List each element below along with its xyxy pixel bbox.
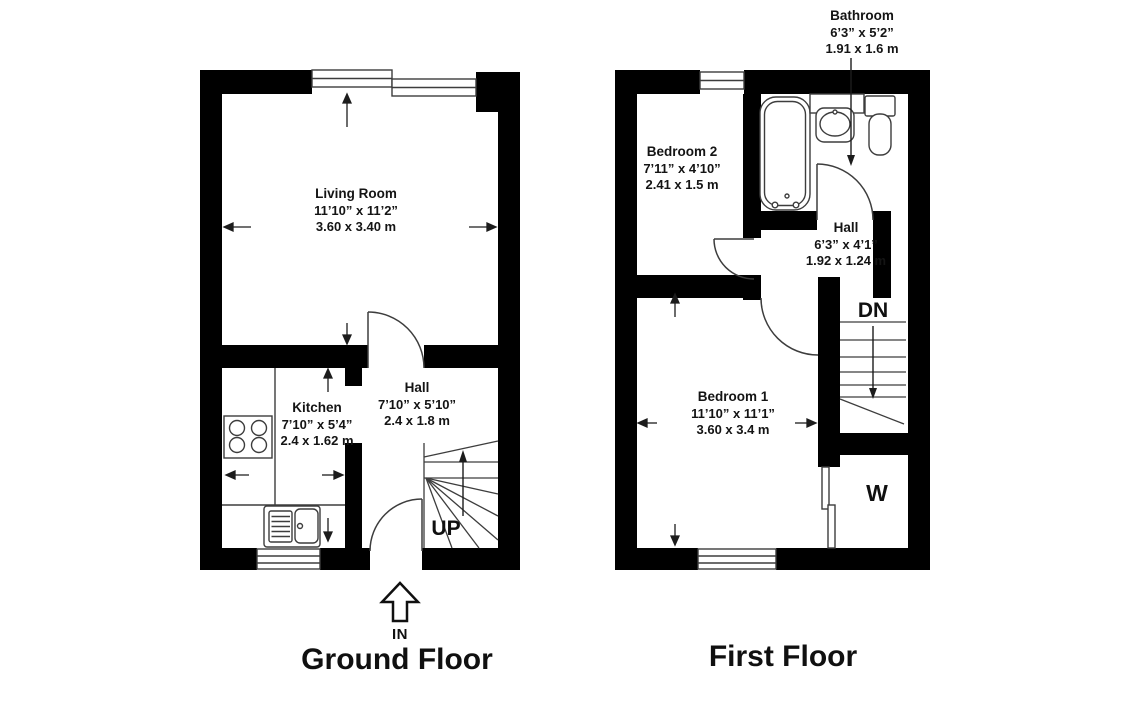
stairs-down-label: DN <box>858 299 888 323</box>
room-name: Living Room <box>314 186 398 203</box>
front-door-arc <box>370 499 422 551</box>
living-room-window-left <box>312 70 392 87</box>
kitchen-sink-icon <box>264 506 320 547</box>
room-dim-metric: 1.91 x 1.6 m <box>826 41 899 58</box>
bedroom2-door-arc <box>714 239 754 279</box>
ground-floor-title: Ground Floor <box>301 643 493 677</box>
room-dim-imperial: 6’3” x 5’2” <box>826 25 899 42</box>
bedroom2-window <box>700 72 744 89</box>
room-dim-imperial: 11’10” x 11’1” <box>691 406 775 423</box>
first-floor-title: First Floor <box>709 640 857 674</box>
ground-floor-windows <box>257 70 476 569</box>
bedroom2-label: Bedroom 2 7’11” x 4’10” 2.41 x 1.5 m <box>643 144 720 194</box>
bedroom1-door-arc <box>761 298 818 355</box>
hob-icon <box>224 416 272 458</box>
first-hall-label: Hall 6’3” x 4’1” 1.92 x 1.24 m <box>806 220 886 270</box>
room-dim-metric: 1.92 x 1.24 m <box>806 253 886 270</box>
ground-floor-plan <box>200 70 520 621</box>
room-name: Bathroom <box>826 8 899 25</box>
room-name: Bedroom 1 <box>691 389 775 406</box>
room-dim-imperial: 7’10” x 5’10” <box>378 397 456 414</box>
bathroom-door-arc <box>817 164 873 220</box>
room-dim-imperial: 7’11” x 4’10” <box>643 161 720 178</box>
ground-hall-label: Hall 7’10” x 5’10” 2.4 x 1.8 m <box>378 380 456 430</box>
entrance-label: IN <box>392 626 408 643</box>
bedroom1-window <box>698 549 776 569</box>
ground-floor-doors <box>368 312 424 551</box>
bedroom1-label: Bedroom 1 11’10” x 11’1” 3.60 x 3.4 m <box>691 389 775 439</box>
kitchen-window <box>257 549 320 569</box>
room-name: Hall <box>806 220 886 237</box>
room-name: Hall <box>378 380 456 397</box>
bathroom-label: Bathroom 6’3” x 5’2” 1.91 x 1.6 m <box>826 8 899 58</box>
living-room-window-right <box>392 79 476 96</box>
entrance-arrow-icon <box>382 583 418 621</box>
room-dim-metric: 3.60 x 3.4 m <box>691 422 775 439</box>
wardrobe-sliding-doors <box>822 467 835 548</box>
stairs-up-label: UP <box>431 517 460 541</box>
stairs-up-arrow <box>459 450 467 516</box>
room-dim-metric: 2.41 x 1.5 m <box>643 177 720 194</box>
room-name: Kitchen <box>281 400 354 417</box>
bathtub-icon <box>760 97 810 210</box>
stairs-down-arrow <box>869 326 877 399</box>
room-dim-metric: 3.60 x 3.40 m <box>314 219 398 236</box>
wardrobe-label: W <box>866 480 888 507</box>
kitchen-label: Kitchen 7’10” x 5’4” 2.4 x 1.62 m <box>281 400 354 450</box>
floorplan-canvas: Living Room 11’10” x 11’2” 3.60 x 3.40 m… <box>0 0 1134 714</box>
room-dim-imperial: 6’3” x 4’1” <box>806 237 886 254</box>
room-dim-imperial: 7’10” x 5’4” <box>281 417 354 434</box>
living-room-door-arc <box>368 312 424 368</box>
bathroom-sink-icon <box>810 94 864 142</box>
toilet-icon <box>865 96 895 155</box>
living-room-label: Living Room 11’10” x 11’2” 3.60 x 3.40 m <box>314 186 398 236</box>
ground-floor-walls <box>200 70 520 570</box>
room-name: Bedroom 2 <box>643 144 720 161</box>
room-dim-metric: 2.4 x 1.8 m <box>378 413 456 430</box>
floorplan-linework <box>0 0 1134 714</box>
room-dim-metric: 2.4 x 1.62 m <box>281 433 354 450</box>
room-dim-imperial: 11’10” x 11’2” <box>314 203 398 220</box>
